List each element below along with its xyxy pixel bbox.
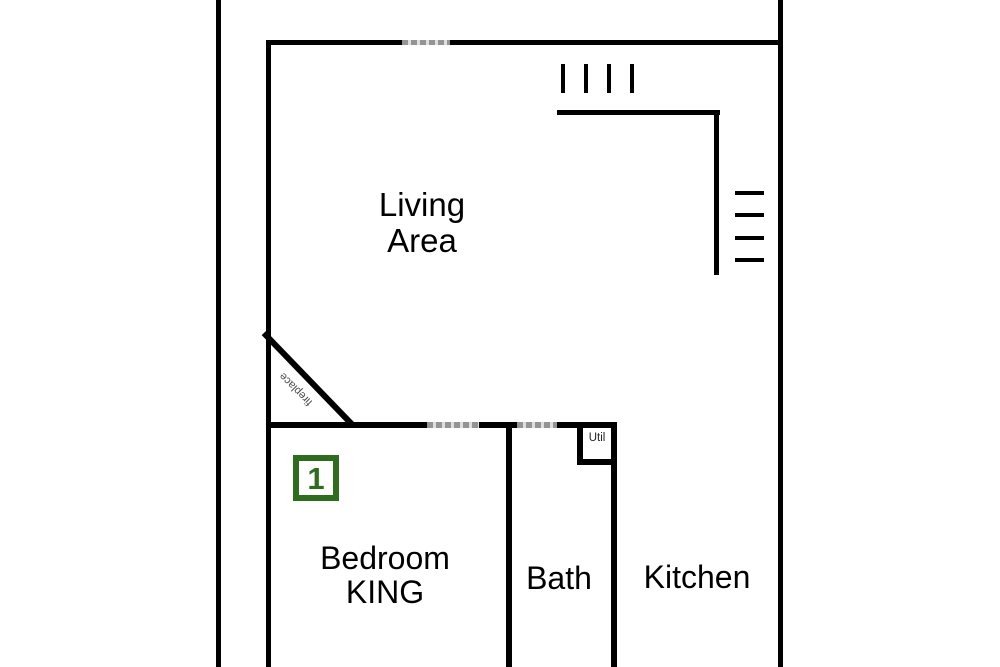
window-tick: [607, 64, 611, 93]
bedroom-bath-wall: [506, 422, 512, 667]
window-tick: [561, 64, 565, 93]
counter-right-edge: [714, 110, 719, 275]
interior-wall-segment: [266, 422, 427, 428]
fireplace-line: [262, 331, 356, 428]
window-tick: [735, 236, 764, 240]
bedroom-label: Bedroom KING: [283, 541, 487, 609]
deck-wall-left: [216, 0, 221, 667]
bedroom-label-line1: Bedroom: [283, 541, 487, 575]
unit-number-badge: 1: [293, 455, 339, 501]
kitchen-label: Kitchen: [617, 559, 777, 595]
living-area-label-line2: Area: [322, 223, 522, 259]
deck-wall-right: [778, 0, 783, 667]
bath-door: [517, 422, 557, 428]
window-tick: [630, 64, 634, 93]
window-tick: [735, 191, 764, 195]
deck-label: Deck: [400, 0, 600, 6]
util-closet-label: Util: [580, 432, 614, 444]
bath-label: Bath: [511, 560, 607, 596]
window-tick: [735, 258, 764, 262]
bedroom-label-line2: KING: [283, 575, 487, 609]
window-tick: [584, 64, 588, 93]
floorplan: Deck Living Area fireplace Util 1 Bedroo…: [0, 0, 1000, 667]
interior-wall-segment: [557, 422, 617, 428]
window-tick: [735, 213, 764, 217]
living-area-label: Living Area: [322, 187, 522, 259]
unit-top-wall-right-segment: [450, 40, 783, 45]
living-area-label-line1: Living: [322, 187, 522, 223]
unit-top-wall-left-segment: [266, 40, 402, 45]
util-closet-bottom-wall: [577, 459, 617, 465]
deck-door: [402, 40, 450, 45]
counter-top-edge: [557, 110, 720, 115]
bedroom-door: [427, 422, 479, 428]
